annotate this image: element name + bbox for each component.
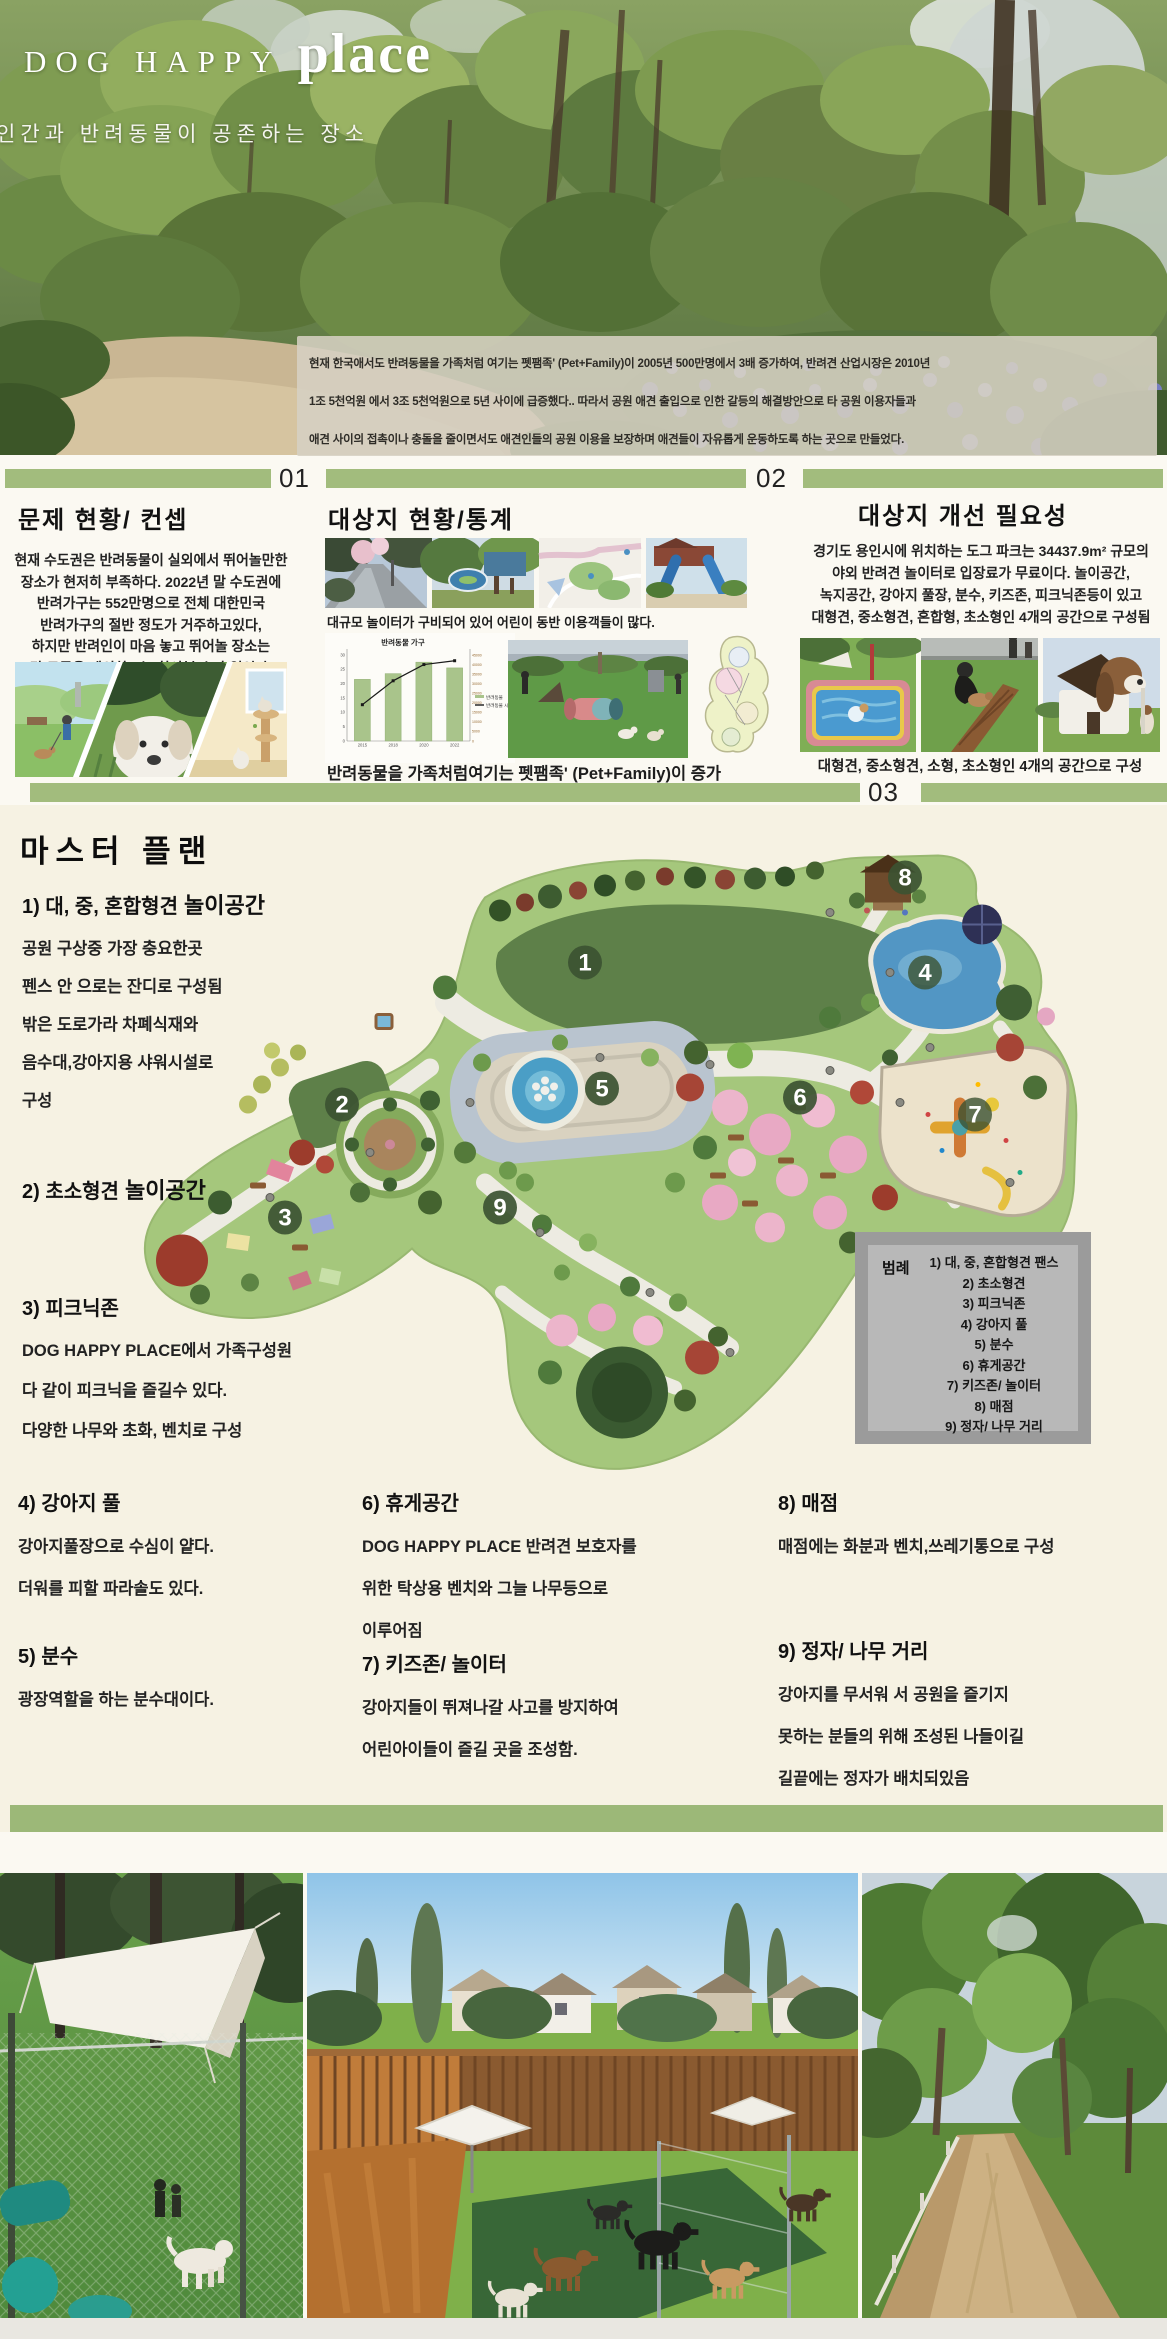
map-marker-5: 5 [585,1072,619,1106]
section-title-problem: 문제 현황/ 컨셉 [18,500,188,535]
svg-text:15000: 15000 [472,711,482,715]
map-marker-4: 4 [908,956,942,990]
legend-item: 4) 강아지 풀 [914,1315,1074,1336]
plan-item-8: 8) 매점 매점에는 화분과 벤치,쓰레기통으로 구성 [778,1487,1054,1568]
legend-item: 9) 정자/ 나무 거리 [914,1417,1074,1438]
svg-text:20: 20 [340,681,345,686]
plan-item-1: 1) 대, 중, 혼합형견놀이공간 공원 구상중 가장 충요한곳 펜스 안 으로… [22,888,265,1120]
svg-text:35000: 35000 [472,672,482,676]
photo-district-map [697,633,785,761]
intro-text-box: 현재 한국애서도 반려동물을 가족처럼 여기는 펫팸족' (Pet+Family… [297,336,1157,456]
header-forest-image: DOG HAPPYplace 인간과 반려동물이 공존하는 장소 현재 한국애서… [0,0,1167,455]
map-marker-8: 8 [888,861,922,895]
photo-dog-building [1035,638,1160,752]
page-title: DOG HAPPYplace [24,22,432,86]
dog-tunnel [564,698,623,720]
site-caption-bottom: 반려동물을 가족처럼여기는 펫팸족' (Pet+Family)이 증가 [327,760,721,784]
divider-bar [803,469,1163,488]
photo-dog-ramp [921,638,1038,752]
svg-text:25000: 25000 [472,692,482,696]
divider-bar [326,469,746,488]
photo-dogpark-shade-sail [0,1873,303,2318]
svg-text:3: 3 [278,1205,291,1232]
divider-number-03: 03 [868,779,899,805]
divider-bar [921,783,1167,802]
photo-dog-pool [800,638,924,752]
map-marker-6: 6 [783,1081,817,1115]
legend-label: 범례 [882,1257,910,1278]
svg-text:30: 30 [340,652,345,657]
pet-household-chart: 반려동물 가구 05101520253005000100001500020000… [325,633,515,763]
photo-tree-lined-path [862,1873,1167,2318]
divider-bar [30,783,860,802]
photo-playground [646,538,747,608]
svg-text:30000: 30000 [472,682,482,686]
map-marker-1: 1 [568,946,602,980]
svg-text:10: 10 [340,710,345,715]
svg-text:2: 2 [335,1092,348,1119]
divider-number-01: 01 [279,465,310,491]
plan-item-5: 5) 분수 광장역할을 하는 분수대이다. [18,1640,214,1721]
svg-text:25: 25 [340,667,345,672]
svg-text:2015: 2015 [358,743,368,748]
svg-text:1: 1 [578,950,591,977]
svg-text:7: 7 [968,1102,981,1129]
divider-bar [5,469,271,488]
svg-text:0: 0 [472,739,474,743]
plan-item-7: 7) 키즈존/ 놀이터 강아지들이 뛰져나갈 사고를 방지하여 어린아이들이 즐… [362,1648,619,1771]
need-caption: 대형견, 중소형견, 소형, 초소형인 4개의 공간으로 구성 [800,755,1160,776]
plan-item-3: 3) 피크닉존 DOG HAPPY PLACE에서 가족구성원 다 같이 피크닉… [22,1292,292,1451]
svg-text:10000: 10000 [472,720,482,724]
divider-number-02: 02 [756,465,787,491]
svg-text:5000: 5000 [472,730,480,734]
map-legend: 범례 1) 대, 중, 혼합형견 팬스 2) 초소형견 3) 피크닉존 4) 강… [855,1232,1091,1444]
legend-item: 6) 휴게공간 [914,1356,1074,1377]
problem-body-text: 현재 수도권은 반려동물이 실외에서 뛰어놀만한 장소가 현저히 부족하다. 2… [10,550,292,679]
need-body-text: 경기도 용인시에 위치하는 도그 파크는 34437.9m² 규모의 야외 반려… [795,540,1167,628]
wooden-fence [307,2049,858,2151]
need-photo-row [800,638,1160,752]
footer-strip [0,2318,1167,2339]
svg-text:40000: 40000 [472,663,482,667]
section-title-site: 대상지 현황/통계 [328,500,514,535]
svg-text:2018: 2018 [388,743,398,748]
plan-item-6: 6) 휴게공간 DOG HAPPY PLACE 반려견 보호자를 위한 탁상용 … [362,1487,637,1652]
photo-park-entrance [420,538,546,608]
svg-text:2022: 2022 [450,743,460,748]
site-photo-row [325,538,747,608]
divider-bar-bottom [10,1805,1163,1832]
tree-canopy [862,1873,1167,2138]
svg-text:45000: 45000 [472,653,482,657]
svg-text:8: 8 [898,865,911,892]
photo-dogpark-fenced-run [307,1873,858,2318]
legend-item: 1) 대, 중, 혼합형견 팬스 [914,1253,1074,1274]
map-marker-3: 3 [268,1201,302,1235]
title-main: DOG HAPPY [24,44,282,79]
section-title-need: 대상지 개선 필요성 [858,496,1068,531]
svg-text:9: 9 [493,1195,506,1222]
intro-text: 현재 한국애서도 반려동물을 가족처럼 여기는 펫팸족' (Pet+Family… [309,345,1145,459]
map-marker-9: 9 [483,1191,517,1225]
svg-text:6: 6 [793,1085,806,1112]
photo-area-map [539,538,641,608]
plan-item-4: 4) 강아지 풀 강아지풀장으로 수심이 얕다. 더워를 피할 파라솔도 있다. [18,1487,214,1610]
chart-title: 반려동물 가구 [381,637,425,647]
svg-text:5: 5 [595,1076,608,1103]
svg-text:4: 4 [918,960,932,987]
photo-dog-playground [508,640,688,758]
svg-text:15: 15 [340,695,345,700]
svg-text:2020: 2020 [419,743,429,748]
map-marker-2: 2 [325,1088,359,1122]
title-accent: place [298,23,432,85]
legend-item: 7) 키즈존/ 놀이터 [914,1376,1074,1397]
map-marker-7: 7 [958,1098,992,1132]
svg-text:반려동물: 반려동물 [486,694,503,701]
legend-item: 5) 분수 [914,1335,1074,1356]
plan-item-9: 9) 정자/ 나무 거리 강아지를 무서워 서 공원을 즐기지 못하는 분들의 … [778,1635,1024,1800]
legend-item: 2) 초소형견 [914,1274,1074,1295]
poster-board: DOG HAPPYplace 인간과 반려동물이 공존하는 장소 현재 한국애서… [0,0,1167,2339]
page-subtitle: 인간과 반려동물이 공존하는 장소 [0,118,369,148]
plan-item-2: 2) 초소형견놀이공간 [22,1173,206,1205]
legend-item: 8) 매점 [914,1397,1074,1418]
site-caption-top: 대규모 놀이터가 구비되어 있어 어린이 동반 이용객들이 많다. [327,612,655,631]
legend-item: 3) 피크닉존 [914,1294,1074,1315]
zone-main-lawn [496,905,902,1044]
photo-collage-pets [15,662,287,777]
